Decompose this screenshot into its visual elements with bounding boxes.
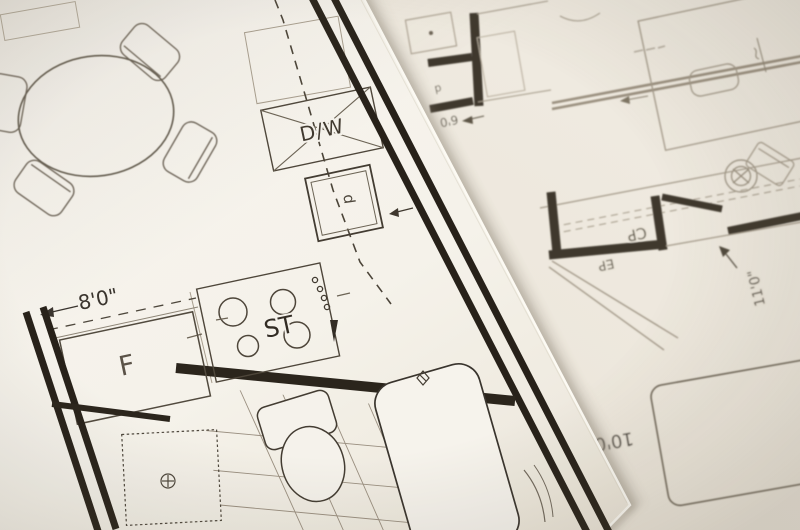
floor-plan-photo: d 6'0 CP EP xyxy=(0,0,800,530)
warm-tone-overlay xyxy=(0,0,800,530)
blueprint-scene: d 6'0 CP EP xyxy=(0,0,800,530)
